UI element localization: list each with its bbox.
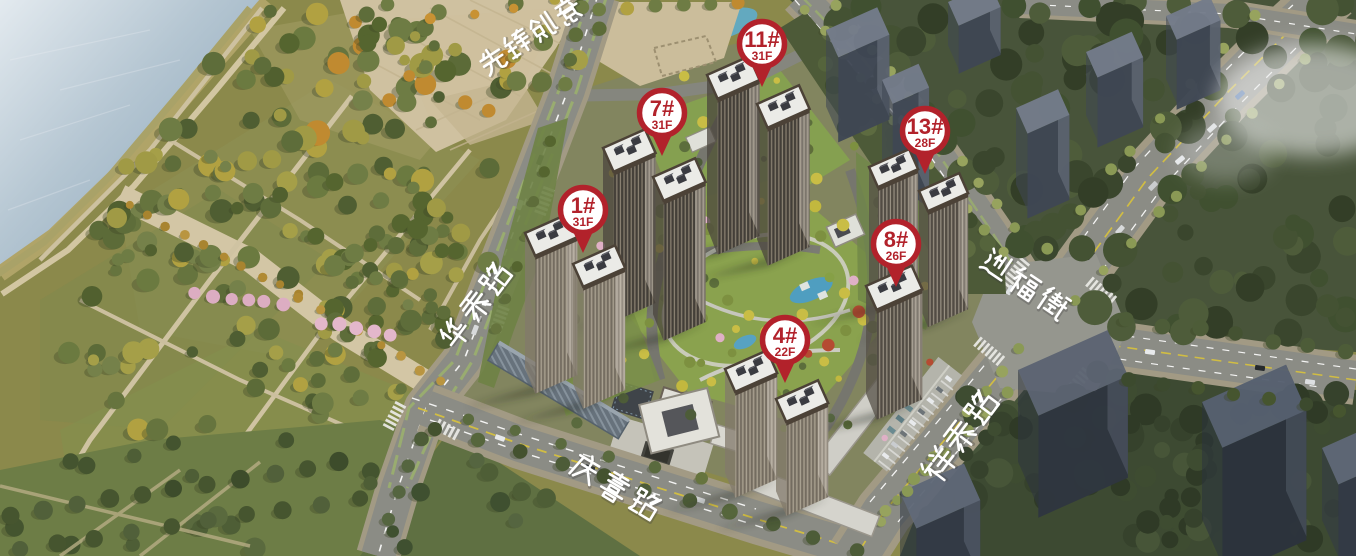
svg-text:31F: 31F	[752, 49, 773, 63]
svg-text:28F: 28F	[915, 136, 936, 150]
svg-text:31F: 31F	[652, 118, 673, 132]
svg-text:22F: 22F	[775, 345, 796, 359]
svg-text:26F: 26F	[886, 249, 907, 263]
svg-text:31F: 31F	[573, 215, 594, 229]
